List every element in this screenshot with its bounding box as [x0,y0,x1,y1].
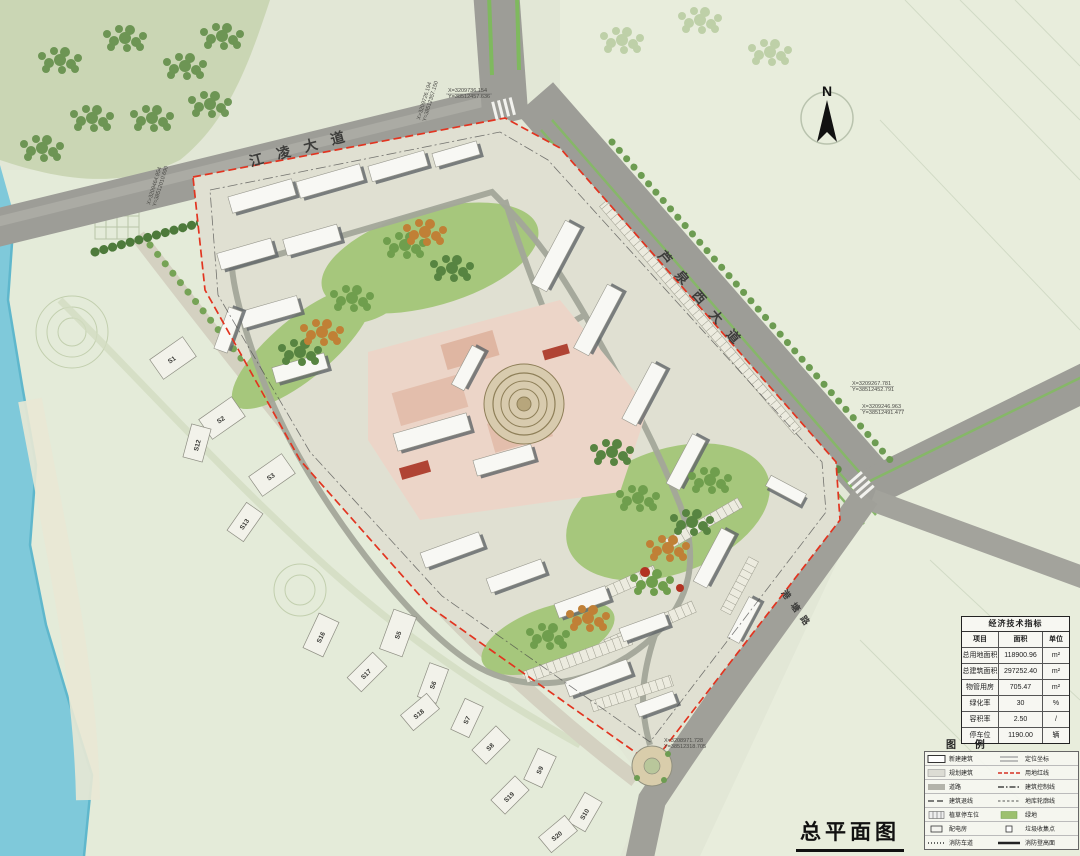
col-header-area: 面积 [998,632,1042,647]
legend-label: 绿地 [1025,810,1078,819]
row-item: 物管用房 [962,679,998,695]
legend-label: 消防车道 [949,838,993,847]
masterplan-screenshot: { "title": "总平面图", "compass": { "label":… [0,0,1080,856]
legend: 新建建筑 定位坐标 规划建筑 用地红线 道路 建筑控制线 建筑退线 地库轮廓线 … [924,751,1079,850]
row-value: 30 [998,695,1042,711]
row-item: 容积率 [962,711,998,727]
central-plaza-fountain [484,364,564,444]
row-item: 绿化率 [962,695,998,711]
row-unit: m² [1042,663,1069,679]
legend-symbol-coordinate-icon [993,754,1025,764]
legend-label: 用地红线 [1025,768,1078,777]
row-unit: m² [1042,647,1069,663]
legend-symbol-setback-line-icon [925,796,949,806]
row-unit: % [1042,695,1069,711]
row-item: 总建筑面积 [962,663,998,679]
coord-y: Y=38512318.705 [664,744,706,750]
table-title: 经济技术指标 [962,617,1069,632]
site-plan-drawing: S1 S2 S12 S3 S13 S16 S5 S17 S6 S18 S7 S8… [0,0,1080,856]
legend-symbol-power-room-icon [925,824,949,834]
col-header-unit: 单位 [1042,632,1069,647]
legend-symbol-red-line-icon [993,768,1025,778]
entrance-roundabout [632,746,672,786]
legend-symbol-planned-building-icon [925,768,949,778]
coord-y: Y=38512457.636 [448,94,490,100]
legend-label: 新建建筑 [949,754,993,763]
coord-y: Y=38512452.791 [852,387,894,393]
legend-symbol-fire-lane-icon [925,838,949,848]
row-value: 118900.96 [998,647,1042,663]
page-title: 总平面图 [796,816,904,852]
legend-label: 建筑退线 [949,796,993,805]
row-value: 2.50 [998,711,1042,727]
row-unit: / [1042,711,1069,727]
legend-label: 定位坐标 [1025,754,1078,763]
legend-title: 图 例 [946,736,1006,751]
legend-symbol-grass-parking-icon [925,810,949,820]
legend-symbol-green-space-icon [993,810,1025,820]
economic-indicators-table: 经济技术指标 项目 面积 单位 总用地面积 118900.96 m² 总建筑面积… [961,616,1070,744]
coord-y: Y=38512491.477 [862,410,904,416]
legend-symbol-basement-outline-icon [993,796,1025,806]
legend-symbol-trash-point-icon [993,824,1025,834]
row-value: 297252.40 [998,663,1042,679]
road-top-vertical [496,0,505,112]
legend-label: 地库轮廓线 [1025,796,1078,805]
row-value: 705.47 [998,679,1042,695]
legend-symbol-fire-access-face-icon [993,838,1025,848]
legend-label: 配电房 [949,824,993,833]
row-unit: 辆 [1042,727,1069,743]
legend-label: 植草停车位 [949,810,993,819]
row-unit: m² [1042,679,1069,695]
legend-label: 消防登高面 [1025,838,1078,847]
legend-symbol-new-building-icon [925,754,949,764]
legend-symbol-control-line-icon [993,782,1025,792]
legend-label: 道路 [949,782,993,791]
road-top-median-2 [517,0,519,70]
legend-label: 垃圾收集点 [1025,824,1078,833]
north-label: N [822,83,832,99]
legend-label: 规划建筑 [949,768,993,777]
col-header-item: 项目 [962,632,998,647]
row-item: 总用地面积 [962,647,998,663]
legend-symbol-road-icon [925,782,949,792]
legend-label: 建筑控制线 [1025,782,1078,791]
